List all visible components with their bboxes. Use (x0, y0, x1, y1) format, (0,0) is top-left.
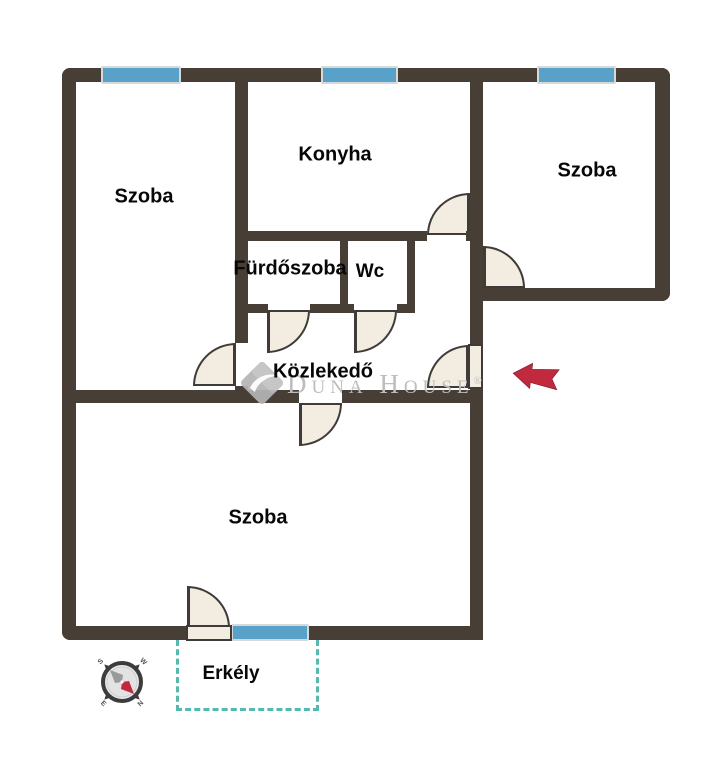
door-kitchen (427, 193, 470, 235)
wall-mid-vertical-lower (470, 388, 483, 640)
entrance-arrow-icon (511, 361, 561, 393)
window-balcony (231, 624, 309, 641)
registered-mark: ® (474, 375, 482, 387)
door-right-room (483, 246, 525, 288)
compass-icon: S W E N (94, 654, 150, 710)
wall-bath-wc-bottom-a (235, 304, 268, 313)
wall-konyha-bottom-a (235, 231, 427, 241)
door-left-room (193, 343, 236, 386)
compass-letter-north: N (137, 700, 146, 709)
wall-right (655, 68, 670, 301)
room-label-furdoszoba: Fürdőszoba (233, 258, 346, 281)
room-label-konyha: Konyha (298, 144, 371, 167)
wall-mid-vertical-upper (470, 288, 483, 345)
compass-letter-south: S (97, 658, 105, 666)
compass-letter-east: E (99, 700, 107, 708)
window-kitchen (321, 66, 398, 84)
room-label-kozlekedo: Közlekedő (273, 361, 373, 384)
door-balcony-swing (187, 586, 230, 628)
door-bathroom (267, 310, 310, 353)
wall-right-room-bottom (470, 288, 670, 301)
room-label-wc: Wc (356, 261, 385, 283)
door-bottom-room (299, 403, 342, 446)
wall-konyha-szoba-divider (470, 82, 483, 288)
room-label-erkely: Erkély (202, 663, 259, 685)
room-label-szoba-left: Szoba (115, 186, 174, 209)
window-left-room (101, 66, 181, 84)
wall-bath-wc-bottom-c (397, 304, 415, 313)
room-label-szoba-right: Szoba (558, 160, 617, 183)
wall-bottom-right-segment (308, 626, 482, 640)
compass-letter-west: W (138, 657, 148, 667)
wall-konyha-bottom-b (466, 231, 483, 241)
wall-bottom-left-segment (62, 626, 186, 640)
wall-left (62, 68, 76, 640)
floor-plan: Szoba Konyha Szoba Fürdőszoba Wc Közleke… (0, 0, 711, 768)
wall-bath-wc-bottom-b (310, 304, 354, 313)
door-wc (354, 310, 397, 353)
wall-wc-right (407, 240, 415, 304)
room-label-szoba-bottom: Szoba (229, 507, 288, 530)
window-right-room (537, 66, 616, 84)
door-balcony-leaf (186, 625, 232, 641)
